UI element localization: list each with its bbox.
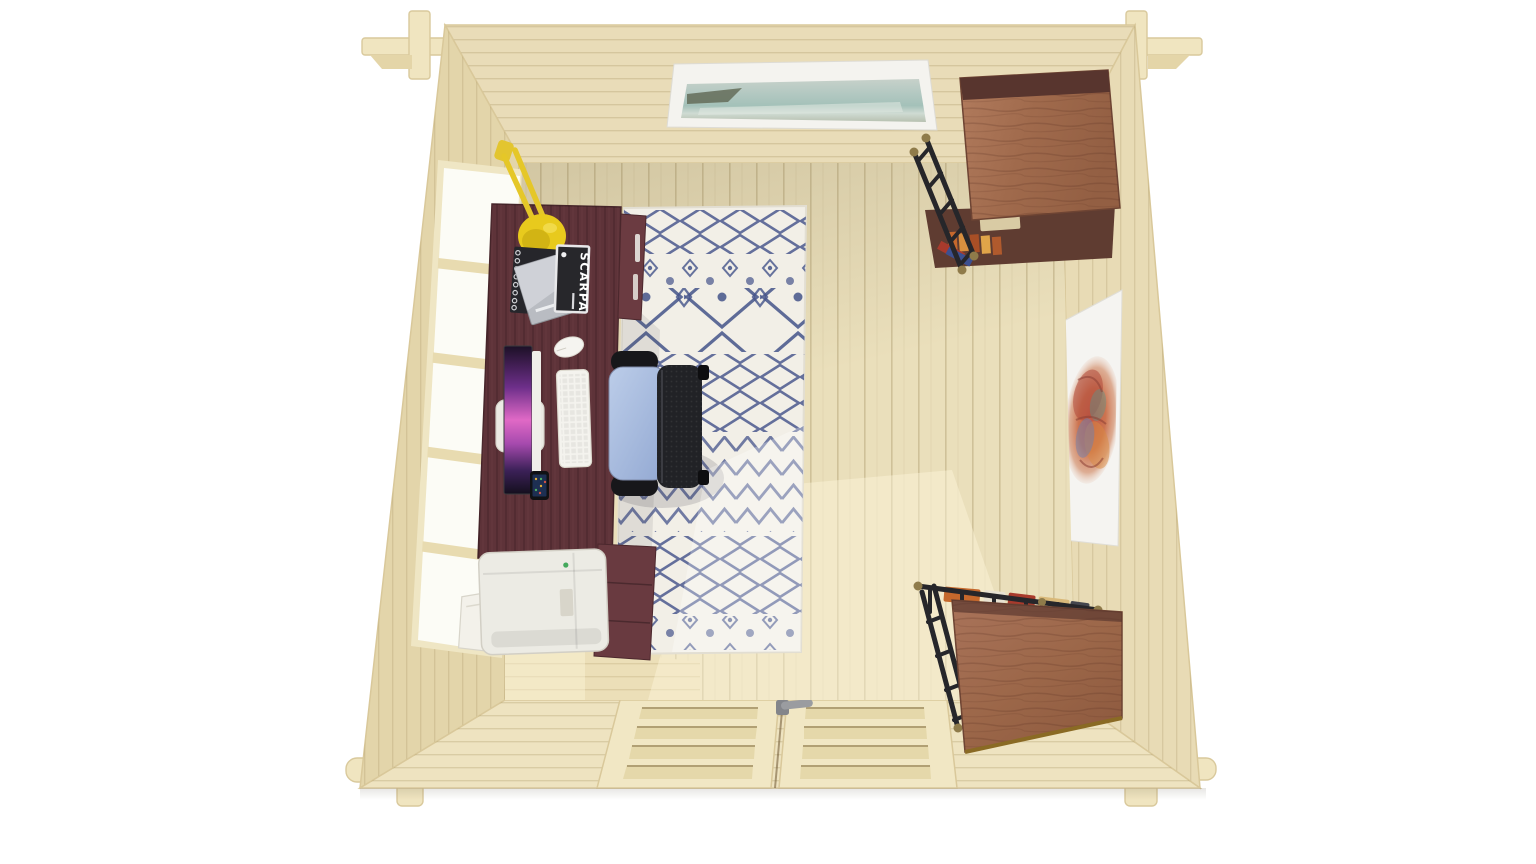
pedestal-handle-1: [635, 234, 640, 262]
keyboard: [556, 369, 591, 467]
printer-control-panel: [560, 589, 574, 616]
rug-band-dots-top: [616, 256, 808, 288]
magazine: SCARPA: [555, 245, 592, 312]
chair-caster-2: [698, 470, 709, 485]
office-chair: [609, 351, 709, 496]
monitor-screen: [504, 346, 532, 494]
cabin-overhead-render: SCARPA: [0, 0, 1536, 864]
magazine-title: SCARPA: [576, 252, 592, 312]
smartphone: [530, 471, 549, 500]
seascape-painting: [667, 60, 937, 130]
log-end-top-left-v: [409, 11, 430, 79]
pedestal-handle-2: [633, 274, 638, 300]
exterior-ground-shadow: [360, 788, 1206, 800]
scene-canvas: SCARPA: [0, 0, 1536, 864]
drawer-pedestal: [618, 214, 646, 320]
chair-caster-1: [698, 365, 709, 380]
log-end-top-left-h: [362, 38, 446, 55]
monitor-chin: [532, 351, 541, 489]
printer: [455, 549, 608, 656]
